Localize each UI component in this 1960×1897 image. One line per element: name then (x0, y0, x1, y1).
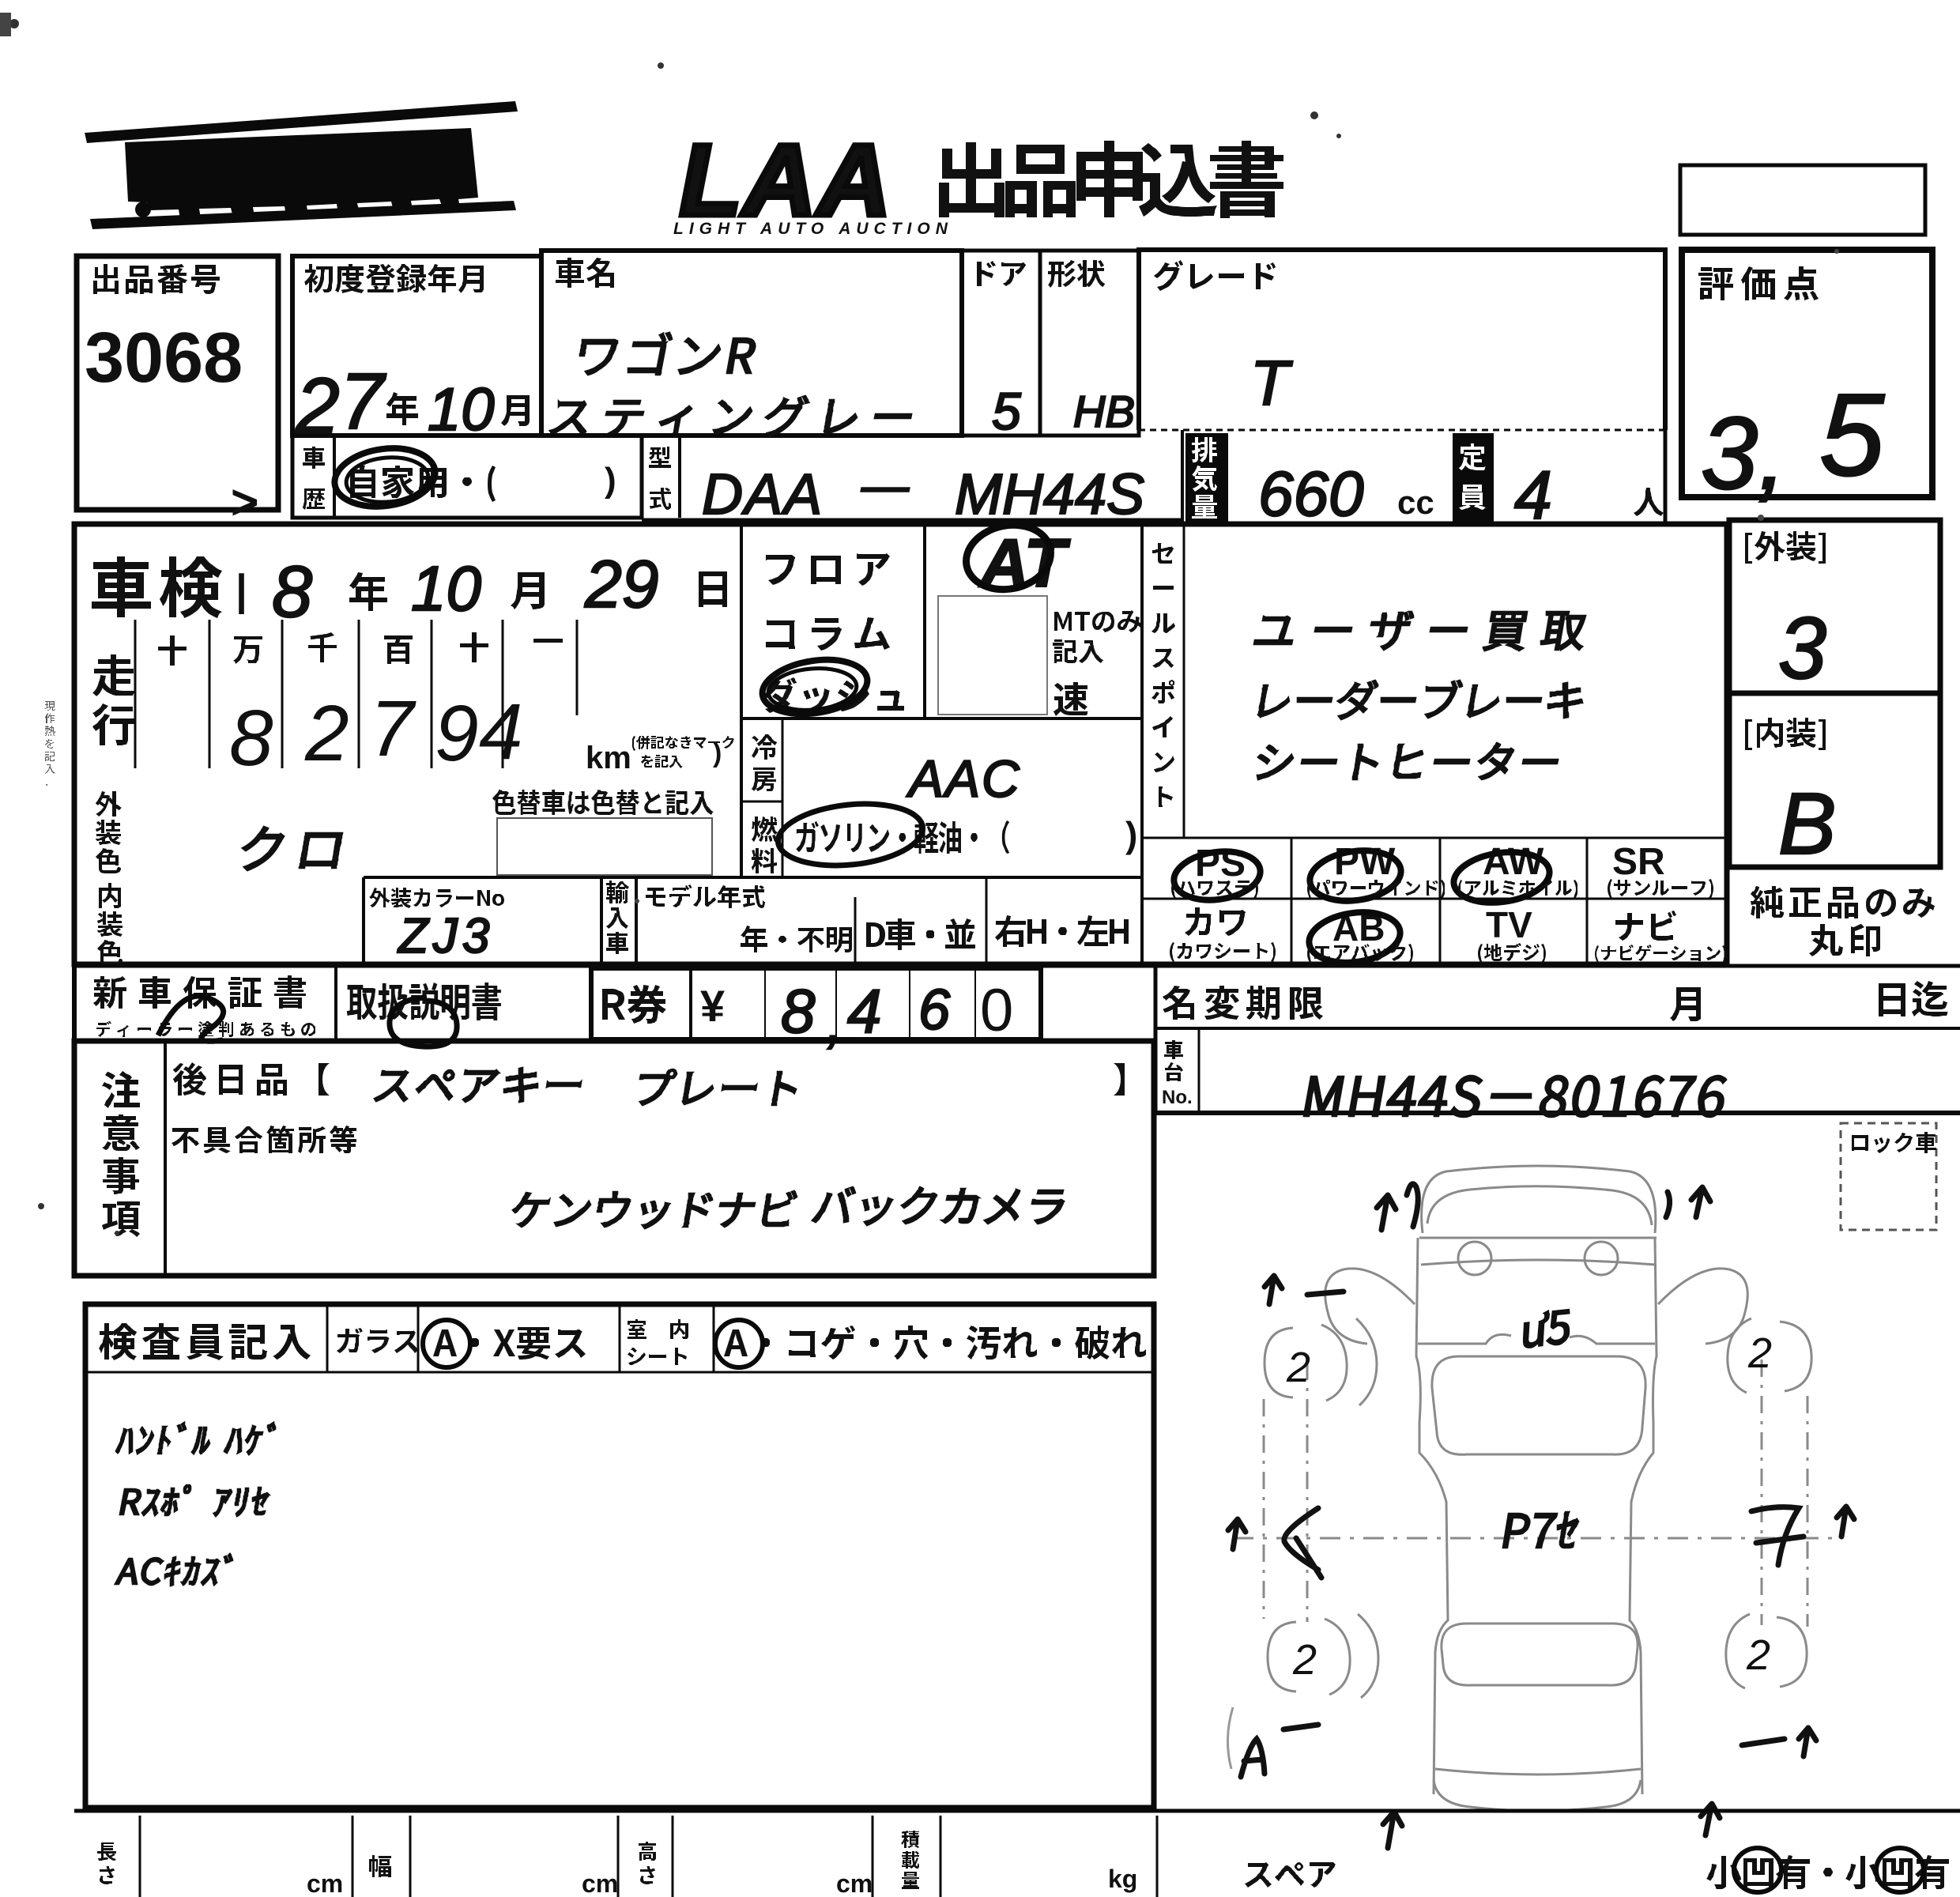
svg-text:PW: PW (1334, 841, 1396, 883)
svg-text:T: T (1250, 348, 1293, 418)
svg-text:¥: ¥ (700, 981, 725, 1031)
svg-text:HB: HB (1073, 387, 1135, 436)
svg-text:4: 4 (847, 976, 881, 1046)
svg-text:SR: SR (1612, 841, 1665, 883)
svg-text:2: 2 (1746, 1631, 1770, 1679)
svg-text:10: 10 (428, 376, 495, 443)
svg-text:3068: 3068 (85, 319, 243, 398)
svg-text:0: 0 (980, 977, 1013, 1044)
svg-text:9: 9 (435, 689, 479, 778)
svg-text:8: 8 (272, 552, 312, 632)
svg-text:>: > (231, 477, 258, 528)
svg-text:): ) (1125, 814, 1137, 855)
svg-text:660: 660 (1258, 458, 1363, 529)
svg-text:2: 2 (1286, 1344, 1310, 1391)
svg-text:7: 7 (340, 357, 386, 446)
svg-text:8: 8 (229, 694, 273, 783)
svg-text:): ) (713, 738, 722, 768)
svg-text:kg: kg (1108, 1865, 1137, 1893)
svg-text:cm: cm (582, 1869, 618, 1897)
svg-text:8: 8 (781, 976, 815, 1046)
svg-text:7: 7 (370, 685, 416, 773)
svg-text:LIGHT AUTO AUCTION: LIGHT AUTO AUCTION (673, 220, 953, 238)
svg-text:AAC: AAC (906, 749, 1021, 808)
svg-text:29: 29 (584, 547, 658, 621)
svg-text:ZJ3: ZJ3 (397, 909, 494, 964)
svg-text:3: 3 (1778, 600, 1826, 697)
svg-text:4: 4 (479, 688, 523, 776)
svg-text:AW: AW (1483, 841, 1544, 883)
svg-text:MH44S: MH44S (955, 463, 1144, 526)
svg-text:2: 2 (1292, 1636, 1317, 1684)
svg-text:2: 2 (304, 689, 349, 778)
svg-text:B: B (1778, 775, 1836, 873)
svg-text:3,: 3, (1701, 395, 1786, 511)
svg-text:km: km (586, 741, 631, 775)
svg-text:): ) (605, 461, 616, 500)
svg-text:6: 6 (918, 979, 951, 1042)
svg-text:5: 5 (1819, 370, 1885, 500)
svg-text:,: , (827, 992, 842, 1054)
svg-text:5: 5 (992, 382, 1021, 440)
svg-text:TV: TV (1486, 904, 1532, 945)
svg-text:2: 2 (1747, 1329, 1772, 1377)
svg-text:No.: No. (1162, 1087, 1193, 1108)
svg-text:—: — (861, 459, 910, 512)
svg-text:cm: cm (307, 1869, 343, 1897)
svg-text:|: | (236, 568, 247, 613)
svg-text:10: 10 (411, 553, 481, 624)
svg-text:cm: cm (836, 1869, 873, 1897)
svg-text:DAA: DAA (702, 463, 824, 526)
svg-text:cc: cc (1397, 484, 1434, 521)
